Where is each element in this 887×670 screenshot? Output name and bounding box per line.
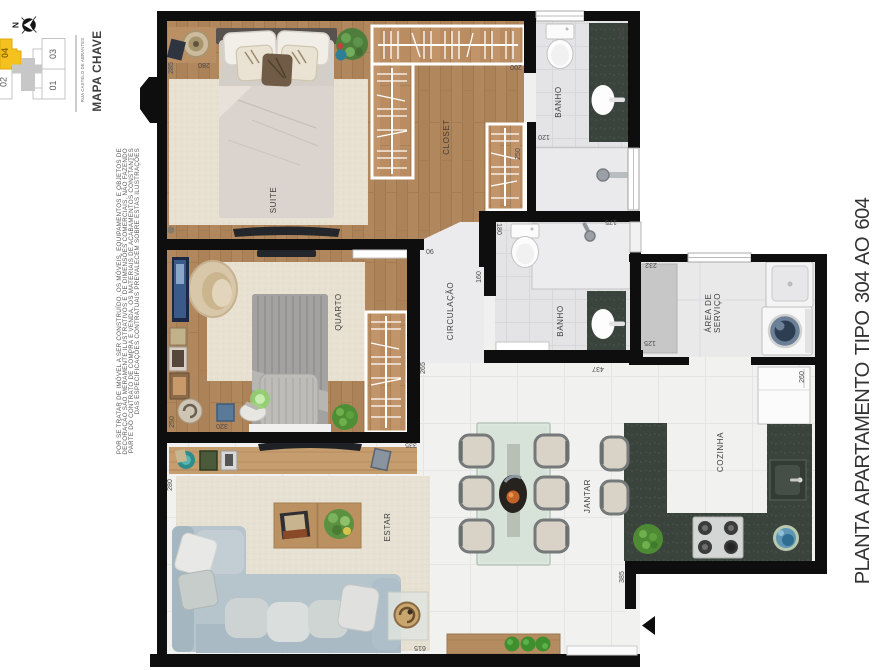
svg-text:175: 175 [605,218,617,225]
svg-text:CIRCULAÇÃO: CIRCULAÇÃO [446,282,455,340]
svg-text:PLANTA APARTAMENTO TIPO 304 AO: PLANTA APARTAMENTO TIPO 304 AO 604 [852,197,874,584]
svg-text:01: 01 [48,80,58,90]
svg-text:385: 385 [619,571,626,583]
svg-text:06: 06 [426,249,434,256]
svg-text:180: 180 [495,223,502,235]
svg-text:615: 615 [414,644,426,651]
svg-text:200: 200 [510,63,522,70]
svg-text:SERVIÇO: SERVIÇO [713,293,722,333]
svg-text:232: 232 [645,261,657,268]
svg-text:285: 285 [168,62,175,74]
svg-text:BANHO: BANHO [554,86,563,117]
svg-text:JANTAR: JANTAR [583,479,592,513]
svg-text:260: 260 [799,371,806,383]
svg-text:SUITE: SUITE [269,187,278,214]
svg-text:03: 03 [48,49,58,59]
svg-text:04: 04 [0,48,10,58]
svg-text:02: 02 [0,77,9,87]
svg-text:MAPA CHAVE: MAPA CHAVE [90,30,104,111]
svg-text:250: 250 [619,27,626,39]
svg-text:320: 320 [216,422,228,429]
svg-text:280: 280 [198,61,210,68]
svg-text:CLOSET: CLOSET [442,119,451,155]
svg-text:160: 160 [476,271,483,283]
svg-text:QUARTO: QUARTO [334,293,343,331]
svg-text:280: 280 [167,479,174,491]
svg-text:RUA CASTELO DE ABRANTES: RUA CASTELO DE ABRANTES [80,38,85,102]
svg-text:COZINHA: COZINHA [716,432,725,472]
svg-text:250: 250 [169,416,176,428]
svg-text:DAS ESPECIFICAÇÕES CONTRATUAIS: DAS ESPECIFICAÇÕES CONTRATUAIS PREVALECE… [134,148,141,414]
svg-text:ESTAR: ESTAR [383,512,392,541]
svg-text:250: 250 [515,148,522,160]
svg-text:BANHO: BANHO [556,305,565,336]
svg-text:120: 120 [538,133,550,140]
svg-text:ÁREA DE: ÁREA DE [704,294,713,333]
svg-text:265: 265 [420,362,427,374]
svg-text:125: 125 [644,339,656,346]
svg-text:N: N [11,22,21,28]
svg-text:437: 437 [592,365,604,372]
svg-text:335: 335 [405,441,417,448]
